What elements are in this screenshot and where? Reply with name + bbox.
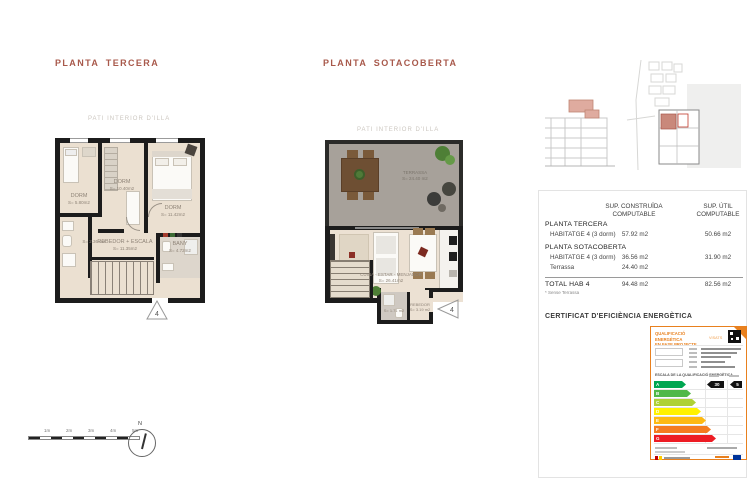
room-label-cuina: CUINA - ESTAR - MENJADOR S= 26.41m2	[343, 272, 439, 284]
towel	[177, 233, 182, 237]
table-row-label: Terrassa	[550, 264, 574, 271]
form-label-line	[689, 356, 697, 358]
form-value-line	[701, 356, 731, 358]
site-plan-key	[625, 58, 745, 172]
table-footnote: * Sense Terrassa	[545, 290, 579, 295]
qr-dot	[731, 338, 733, 340]
wall	[377, 320, 433, 324]
table-row-useful: 50.66 m2	[693, 231, 743, 238]
energy-certificate: QUALIFICACIÓ ENERGÈTICA EN FASE PROJECTE…	[650, 326, 747, 460]
energy-letter: B	[656, 391, 659, 396]
unit-marker-sotacoberta: 4	[437, 299, 460, 319]
appliance	[449, 252, 457, 261]
form-label-line	[655, 447, 677, 449]
footer-text-line	[664, 457, 690, 459]
energy-letter: D	[656, 409, 659, 414]
stairs	[90, 261, 154, 295]
form-label-line	[689, 361, 697, 363]
eu-flag-icon	[733, 455, 741, 461]
col-header-useful: SUP. ÚTIL COMPUTABLE	[690, 203, 746, 219]
highlighted-floor	[585, 110, 599, 118]
terrace-chair	[347, 150, 358, 158]
room-label-dorm-1: DORM S= 5.80m2	[60, 193, 98, 206]
form-value-line	[655, 451, 685, 453]
floorplan-tercera: DORM S= 5.80m2 DORM S= 10.40m2 DORM S= 1…	[55, 138, 205, 303]
window	[156, 138, 178, 143]
pillow	[173, 158, 187, 166]
form-value-line	[701, 352, 737, 354]
towel	[163, 233, 168, 237]
north-compass	[128, 429, 156, 457]
room-label-dorm-2: DORM S= 10.40m2	[100, 179, 144, 192]
plant	[445, 155, 455, 165]
terrace-chair	[363, 150, 374, 158]
plan-sheet: PLANTA TERCERA PLANTA SOTACOBERTA PATI I…	[0, 0, 750, 500]
form-label-line	[689, 366, 697, 368]
form-field-box	[655, 359, 683, 367]
window	[110, 138, 130, 143]
title-planta-sotacoberta: PLANTA SOTACOBERTA	[323, 58, 457, 68]
svg-text:4: 4	[155, 311, 159, 318]
towel	[170, 233, 175, 237]
divider	[654, 345, 743, 346]
table-plant	[354, 169, 365, 180]
wall	[429, 312, 433, 324]
energy-letter: C	[656, 400, 659, 405]
wall	[458, 226, 463, 292]
room-label-rebedor: REBEDOR S= 3.19 m2	[405, 302, 435, 313]
pillow	[155, 158, 169, 166]
col-label-line	[729, 375, 739, 377]
washer	[62, 253, 76, 267]
table-section-sotacoberta: PLANTA SOTACOBERTA	[545, 244, 626, 251]
sink	[162, 263, 174, 271]
energy-letter: G	[656, 436, 660, 441]
scale-bar	[28, 436, 140, 440]
grid-line	[654, 389, 743, 390]
room-label-dorm-3: DORM S= 11.42m2	[148, 205, 198, 218]
wall	[144, 143, 148, 233]
stair-railing	[90, 257, 154, 260]
bed-throw	[152, 189, 192, 199]
terrace-chair	[347, 192, 358, 200]
form-value-line	[707, 447, 737, 449]
table-section-tercera: PLANTA TERCERA	[545, 221, 608, 228]
unit-marker-tercera: 4	[146, 300, 168, 320]
certificate-section-title: CERTIFICAT D'EFICIÈNCIA ENERGÈTICA	[545, 313, 692, 320]
scale-label: 2m	[66, 428, 72, 433]
energy-value-primary: 30	[707, 381, 724, 388]
room-label-terrassa: TERRASSA S= 24.40 m2	[383, 170, 447, 182]
grid-line	[654, 443, 743, 444]
energy-bar-B: B	[654, 390, 691, 397]
form-label-line	[689, 348, 697, 350]
building-section-key	[543, 88, 617, 174]
room-label-bany-2: S= 1.71 m2	[381, 308, 407, 313]
grid-line	[654, 416, 743, 417]
table-row-built: 24.40 m2	[600, 264, 670, 271]
toilet	[62, 235, 72, 247]
lounge-chair	[442, 182, 456, 196]
qr-dot	[730, 332, 733, 335]
scale-title: ESCALA DE LA QUALIFICACIÓ ENERGÈTICA	[655, 373, 733, 377]
table-row-built: 36.56 m2	[600, 254, 670, 261]
form-field-box	[655, 348, 683, 356]
door-swing	[126, 217, 140, 231]
energy-bar-G: G	[654, 435, 716, 442]
certificate-header-tag: VISATS	[709, 336, 722, 340]
compass-needle	[141, 433, 147, 449]
closet	[82, 147, 96, 157]
energy-letter: E	[656, 418, 659, 423]
side-table	[438, 204, 446, 212]
scale-label: 4m	[110, 428, 116, 433]
grid-line	[654, 425, 743, 426]
table-row-built: 57.92 m2	[600, 231, 670, 238]
room-label-bany: BANY S= 4.72m2	[160, 241, 200, 254]
terrace-glass-door	[355, 227, 419, 229]
form-label-line	[689, 352, 697, 354]
wall	[98, 229, 124, 233]
room-label-rebedor: REBEDOR + ESCALA S= 11.35m2	[94, 239, 156, 252]
chair	[413, 228, 423, 235]
footer-orange-line	[715, 456, 729, 458]
energy-bar-E: E	[654, 417, 706, 424]
context-label-sotacoberta: PATI INTERIOR D'ILLA	[357, 127, 439, 133]
scale-label: 3m	[88, 428, 94, 433]
energy-letter: A	[656, 382, 659, 387]
wall	[429, 288, 433, 298]
energy-letter: F	[656, 427, 659, 432]
form-value-line	[701, 366, 735, 368]
north-label: N	[138, 421, 142, 427]
form-value-line	[701, 348, 741, 350]
appliance	[449, 236, 457, 245]
table-row-useful: 31.90 m2	[693, 254, 743, 261]
generalitat-logo-stripes	[659, 456, 662, 460]
col-header-built: SUP. CONSTRUÏDA COMPUTABLE	[588, 203, 680, 219]
col-label-line	[709, 375, 719, 377]
chair	[425, 228, 435, 235]
pillow	[65, 149, 77, 156]
scale-label: 1m	[44, 428, 50, 433]
table-total-useful: 82.56 m2	[693, 281, 743, 288]
sofa-cushion	[376, 236, 396, 254]
shower	[383, 294, 395, 306]
window	[70, 138, 88, 143]
svg-text:4: 4	[450, 307, 454, 314]
wall	[325, 298, 382, 303]
energy-bar-C: C	[654, 399, 696, 406]
table-divider	[545, 277, 743, 278]
terrace-chair	[363, 192, 374, 200]
grid-line	[654, 398, 743, 399]
sink	[62, 221, 74, 231]
grid-line	[654, 434, 743, 435]
wall	[60, 213, 100, 217]
energy-bar-A: A	[654, 381, 686, 388]
kitchen-sink	[449, 270, 457, 277]
divider	[654, 454, 743, 455]
context-label-tercera: PATI INTERIOR D'ILLA	[88, 116, 170, 122]
grid-line	[654, 407, 743, 408]
energy-value-emissions: 5	[730, 381, 742, 388]
table-total-label: TOTAL HAB 4	[545, 281, 590, 288]
energy-bar-D: D	[654, 408, 701, 415]
title-planta-tercera: PLANTA TERCERA	[55, 58, 159, 68]
energy-bar-F: F	[654, 426, 711, 433]
form-value-line	[701, 361, 725, 363]
cushion	[349, 252, 355, 258]
qr-code-icon	[728, 330, 741, 343]
qr-dot	[736, 337, 739, 340]
table-total-built: 94.48 m2	[600, 281, 670, 288]
highlighted-unit	[661, 114, 676, 129]
